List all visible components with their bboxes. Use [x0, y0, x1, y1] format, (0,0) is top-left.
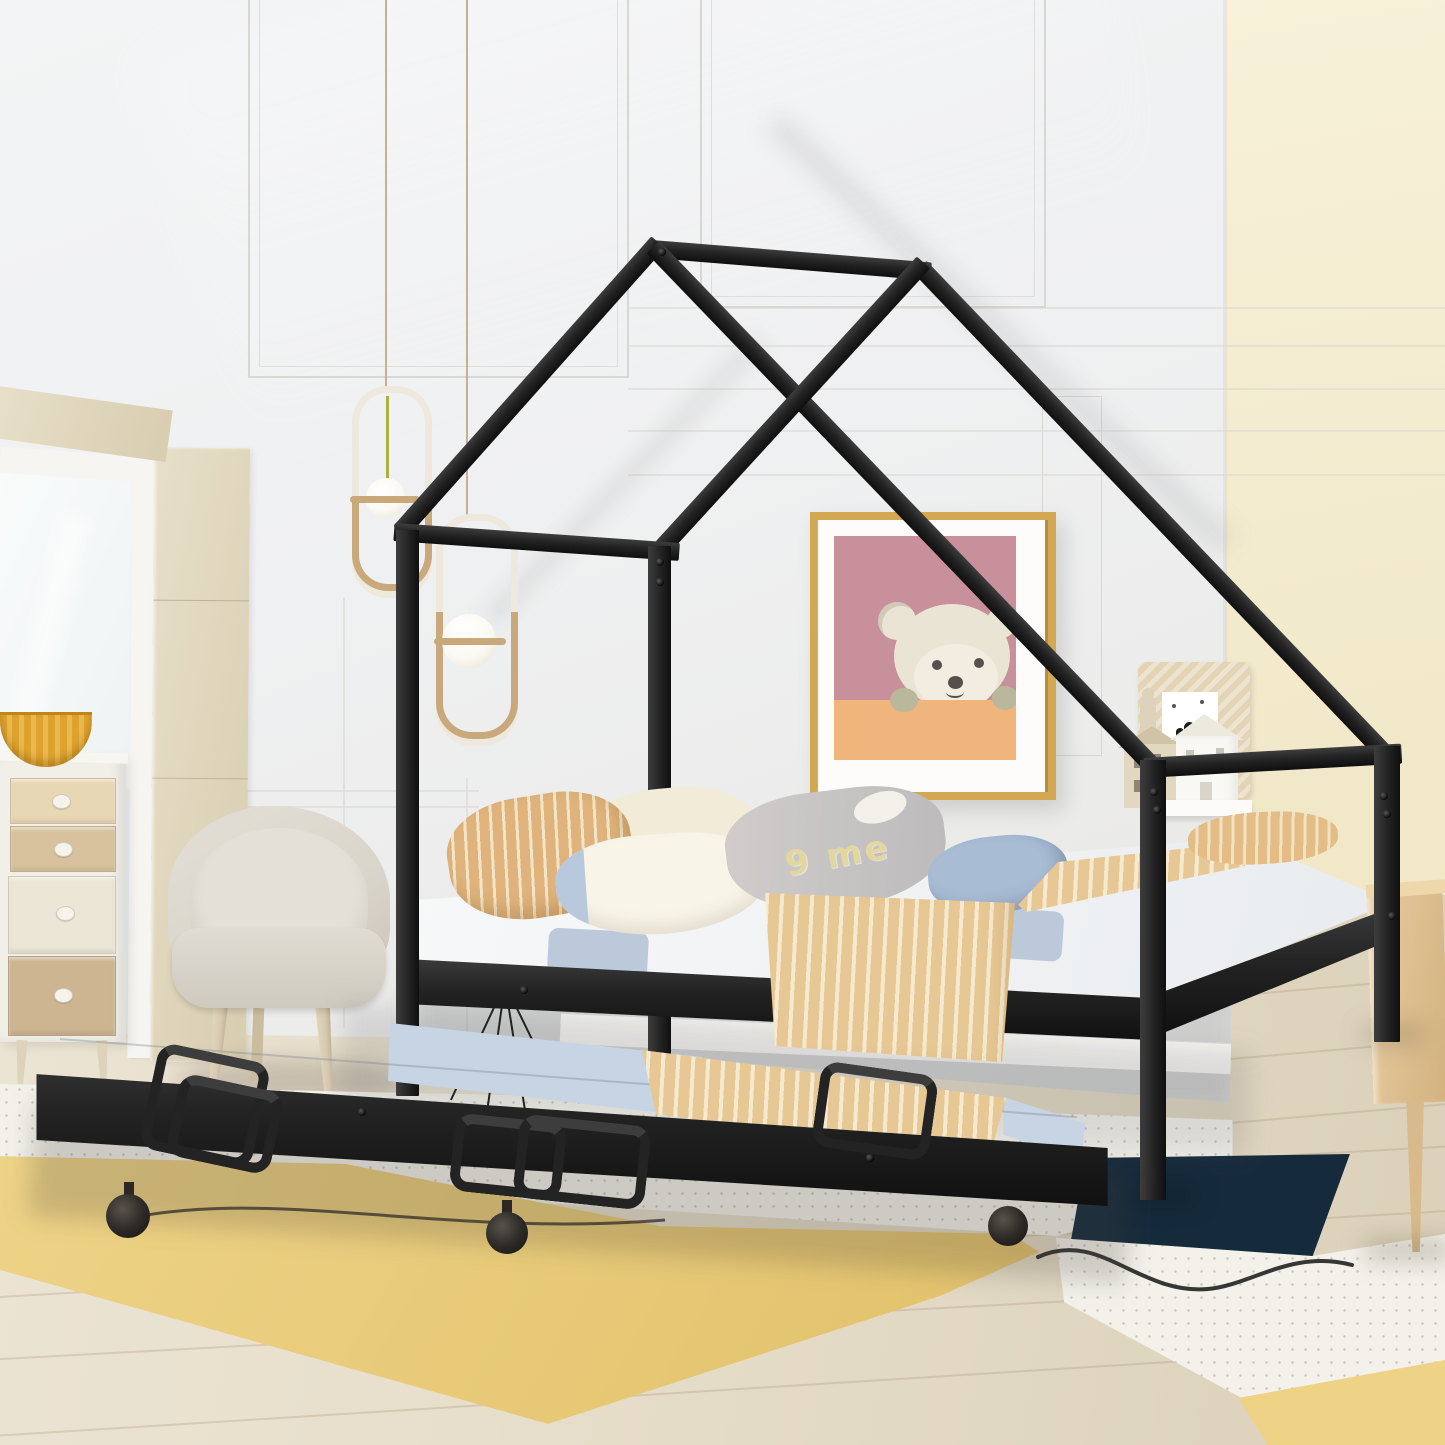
bear-paw-right	[992, 686, 1016, 710]
wainscot-rail-1	[235, 790, 479, 792]
wall-right-accent	[1225, 0, 1445, 940]
trundle-handle-right	[811, 1060, 940, 1162]
frame-bolt	[1383, 810, 1391, 818]
bed-post-foot-far	[1374, 746, 1400, 1042]
dresser-knob	[52, 794, 71, 809]
frame-bolt	[1380, 792, 1388, 800]
bear-smile	[946, 686, 964, 698]
dresser-knob	[54, 842, 73, 857]
decor-wood-tower-ball	[1142, 688, 1154, 700]
teddy-artwork-frame	[810, 512, 1056, 800]
frame-bolt	[656, 578, 664, 586]
trundle-bolt	[866, 1154, 874, 1162]
pillow-graphic-blob	[850, 785, 910, 829]
trundle-handle-center-2	[512, 1113, 652, 1210]
trundle-caster-center	[486, 1212, 528, 1254]
frame-bolt	[658, 248, 666, 256]
pillow-white-trim	[553, 839, 590, 941]
teddy-art	[834, 536, 1016, 760]
blanket-drape	[755, 880, 1025, 1070]
dresser	[0, 756, 126, 1042]
wall-panel-left-inner	[259, 0, 618, 367]
pendant-bar-1	[350, 496, 420, 503]
card-dot	[1172, 704, 1176, 708]
nightstand-shadow	[1366, 1240, 1445, 1260]
window-trim-joint	[153, 600, 249, 602]
bear-eye	[932, 660, 942, 670]
rail-bolt	[520, 986, 528, 994]
rail-bolt	[1388, 912, 1396, 920]
chair-seat	[172, 928, 386, 1008]
bedroom-scene: 9 me	[0, 0, 1445, 1445]
frame-bolt	[1153, 806, 1161, 814]
trundle-caster-left	[106, 1194, 150, 1238]
wall-rail-4	[628, 430, 1445, 432]
dresser-knob	[56, 906, 75, 921]
pillow-letters: 9 me	[782, 827, 893, 885]
window-trim-joint	[152, 778, 248, 780]
bed-post-head-near	[396, 530, 419, 1096]
frame-bolt	[1150, 788, 1158, 796]
bear-eye	[974, 658, 984, 668]
pendant-cable-1	[385, 0, 387, 392]
pendant-bar-2	[434, 638, 506, 645]
card-dot	[1200, 700, 1204, 704]
art-orange-ledge	[834, 700, 1016, 760]
bed-post-foot-near	[1140, 760, 1166, 1200]
bear-paw-left	[890, 688, 918, 712]
trundle-bolt	[358, 1108, 366, 1116]
dresser-knob	[54, 988, 73, 1003]
frame-bolt	[656, 558, 664, 566]
wall-rail-5	[628, 474, 1445, 476]
trundle-caster-right	[988, 1206, 1028, 1246]
wall-rail-1	[628, 307, 1445, 309]
wall-panel-left	[248, 0, 629, 378]
